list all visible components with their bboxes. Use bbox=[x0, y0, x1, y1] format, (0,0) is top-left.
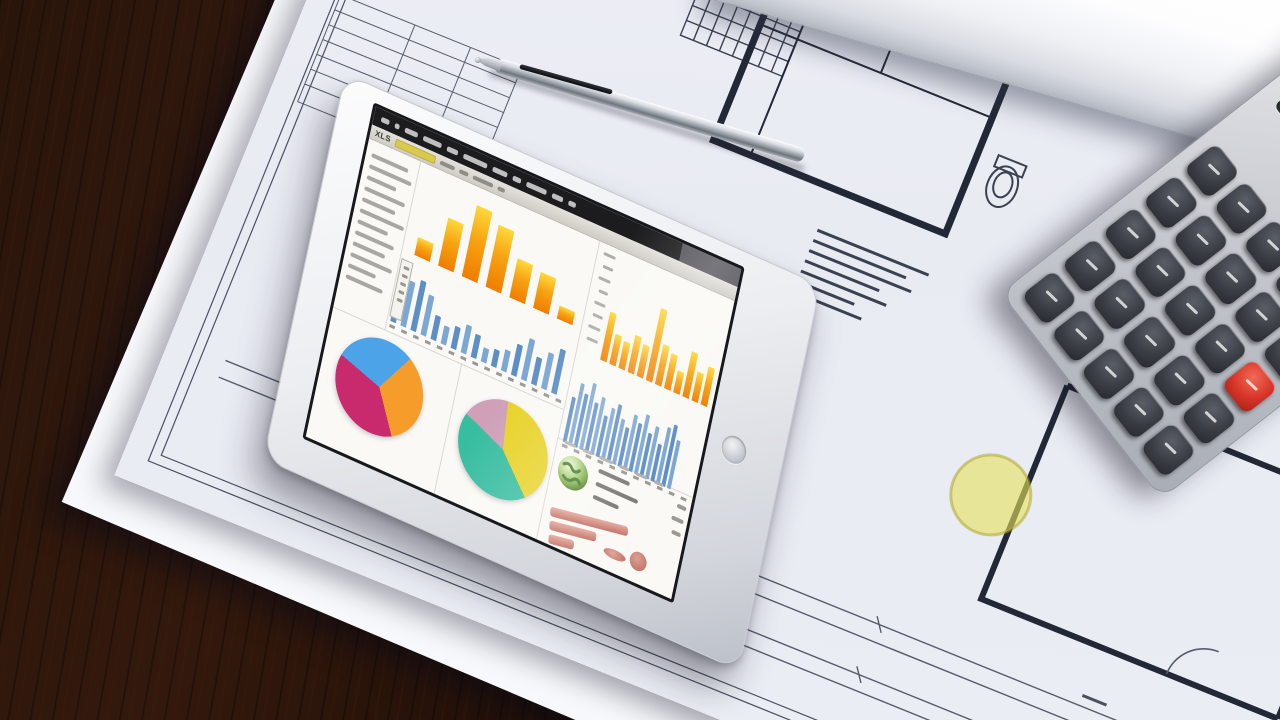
bar bbox=[501, 349, 511, 373]
bar bbox=[481, 347, 489, 364]
text-placeholder bbox=[497, 186, 505, 193]
text-placeholder bbox=[598, 289, 608, 296]
bar bbox=[491, 348, 500, 368]
divider bbox=[434, 363, 463, 493]
bar bbox=[471, 334, 481, 359]
text-placeholder bbox=[447, 145, 459, 155]
photo-scene: XLS bbox=[0, 0, 1280, 720]
text-placeholder bbox=[394, 122, 400, 129]
bar bbox=[461, 324, 472, 355]
kpi-value bbox=[677, 503, 687, 511]
funnel-bar bbox=[548, 534, 574, 550]
text-placeholder bbox=[598, 276, 611, 284]
bar bbox=[438, 218, 464, 272]
text-placeholder bbox=[423, 135, 442, 148]
bar bbox=[509, 258, 533, 304]
kpi-value bbox=[671, 529, 681, 537]
bar bbox=[531, 357, 542, 386]
text-placeholder bbox=[603, 265, 614, 272]
text-placeholder bbox=[552, 192, 564, 202]
text-placeholder bbox=[588, 324, 601, 332]
text-placeholder bbox=[359, 208, 404, 232]
calc-key[interactable] bbox=[1140, 421, 1198, 478]
bar bbox=[431, 314, 442, 341]
text-placeholder bbox=[405, 127, 419, 138]
kpi-value bbox=[671, 515, 684, 524]
text-placeholder bbox=[345, 274, 382, 294]
text-placeholder bbox=[568, 200, 576, 208]
bar bbox=[486, 224, 515, 293]
funnel-bars bbox=[548, 507, 672, 580]
bar bbox=[451, 326, 461, 350]
text-placeholder bbox=[586, 336, 598, 344]
home-button[interactable] bbox=[719, 431, 748, 468]
text-placeholder bbox=[440, 160, 455, 171]
calc-key[interactable] bbox=[1180, 389, 1238, 446]
text-placeholder bbox=[526, 181, 547, 195]
text-placeholder bbox=[592, 313, 603, 320]
bar bbox=[701, 366, 716, 407]
calc-clear-key[interactable] bbox=[1221, 358, 1279, 415]
bar bbox=[533, 272, 556, 315]
text-placeholder bbox=[381, 116, 390, 125]
text-placeholder bbox=[594, 300, 606, 308]
text-placeholder bbox=[459, 168, 469, 176]
highlighter-mark bbox=[939, 443, 1043, 547]
bar bbox=[414, 237, 433, 262]
kpi-label bbox=[593, 494, 619, 509]
bar bbox=[557, 305, 575, 325]
text-placeholder bbox=[603, 252, 616, 260]
text-placeholder bbox=[512, 175, 521, 184]
text-placeholder bbox=[492, 166, 508, 178]
bar bbox=[441, 325, 450, 345]
bar bbox=[511, 344, 523, 377]
